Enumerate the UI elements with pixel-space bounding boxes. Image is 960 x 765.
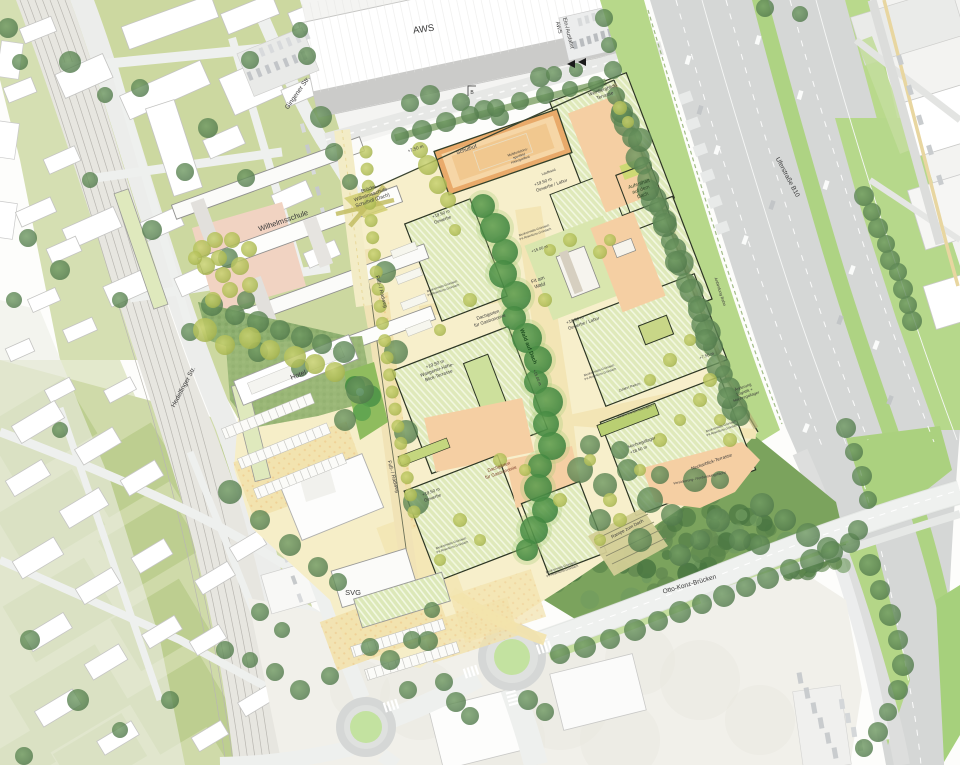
svg-text:SVG: SVG [345, 588, 361, 597]
